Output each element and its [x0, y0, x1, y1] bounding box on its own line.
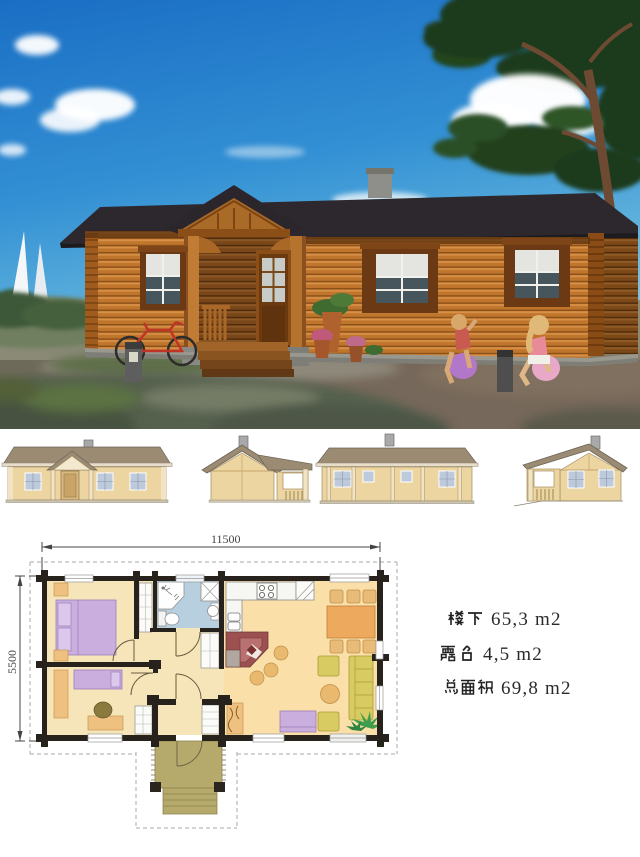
svg-text:4,5 m2: 4,5 m2 — [483, 644, 543, 665]
svg-text:65,3 m2: 65,3 m2 — [491, 609, 562, 630]
svg-text:11500: 11500 — [211, 532, 241, 546]
svg-text:69,8 m2: 69,8 m2 — [501, 678, 572, 699]
svg-text:5500: 5500 — [5, 650, 19, 674]
